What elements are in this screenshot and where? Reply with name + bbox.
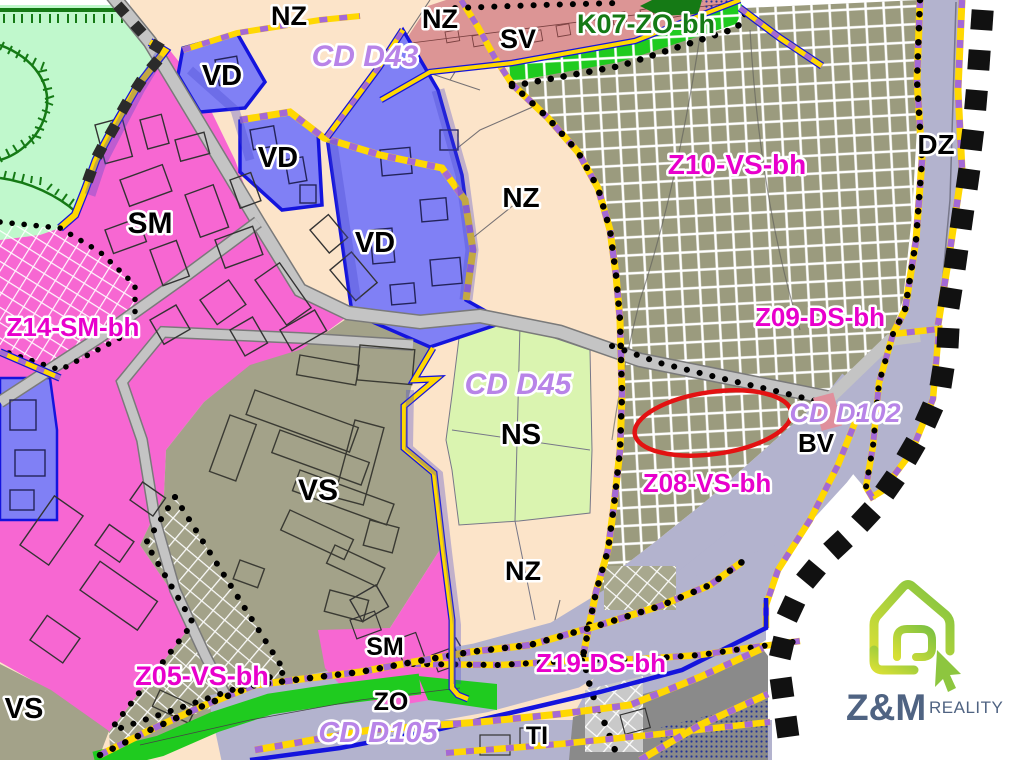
svg-text:Z14-SM-bh: Z14-SM-bh <box>7 312 140 342</box>
svg-text:Z08-VS-bh: Z08-VS-bh <box>643 468 772 498</box>
svg-text:CD D105: CD D105 <box>318 717 438 749</box>
svg-text:Z19-DS-bh: Z19-DS-bh <box>536 648 666 678</box>
svg-text:NZ: NZ <box>502 182 539 213</box>
svg-text:DZ: DZ <box>917 129 954 160</box>
svg-text:REALITY: REALITY <box>929 698 1003 717</box>
svg-text:K07-ZO-bh: K07-ZO-bh <box>577 9 715 39</box>
svg-text:VD: VD <box>202 60 242 92</box>
svg-text:Z&M: Z&M <box>846 687 926 728</box>
svg-text:Z05-VS-bh: Z05-VS-bh <box>135 661 269 691</box>
svg-text:BV: BV <box>798 428 835 458</box>
svg-text:Z10-VS-bh: Z10-VS-bh <box>668 149 806 180</box>
svg-text:SM: SM <box>128 207 173 240</box>
svg-text:NZ: NZ <box>505 556 541 586</box>
svg-text:CD D102: CD D102 <box>789 398 900 428</box>
svg-text:NZ: NZ <box>422 4 458 34</box>
svg-text:CD D45: CD D45 <box>465 368 573 401</box>
svg-text:TI: TI <box>526 722 548 750</box>
svg-text:VS: VS <box>5 693 44 725</box>
svg-text:CD D43: CD D43 <box>312 40 419 73</box>
svg-text:NZ: NZ <box>271 1 307 31</box>
svg-text:NS: NS <box>501 419 541 451</box>
svg-text:ZO: ZO <box>374 688 409 716</box>
svg-text:Z09-DS-bh: Z09-DS-bh <box>755 302 885 332</box>
svg-text:SM: SM <box>366 633 404 661</box>
svg-text:VS: VS <box>298 474 338 507</box>
svg-text:SV: SV <box>500 24 536 54</box>
svg-text:VD: VD <box>258 142 298 174</box>
svg-text:VD: VD <box>355 227 395 259</box>
